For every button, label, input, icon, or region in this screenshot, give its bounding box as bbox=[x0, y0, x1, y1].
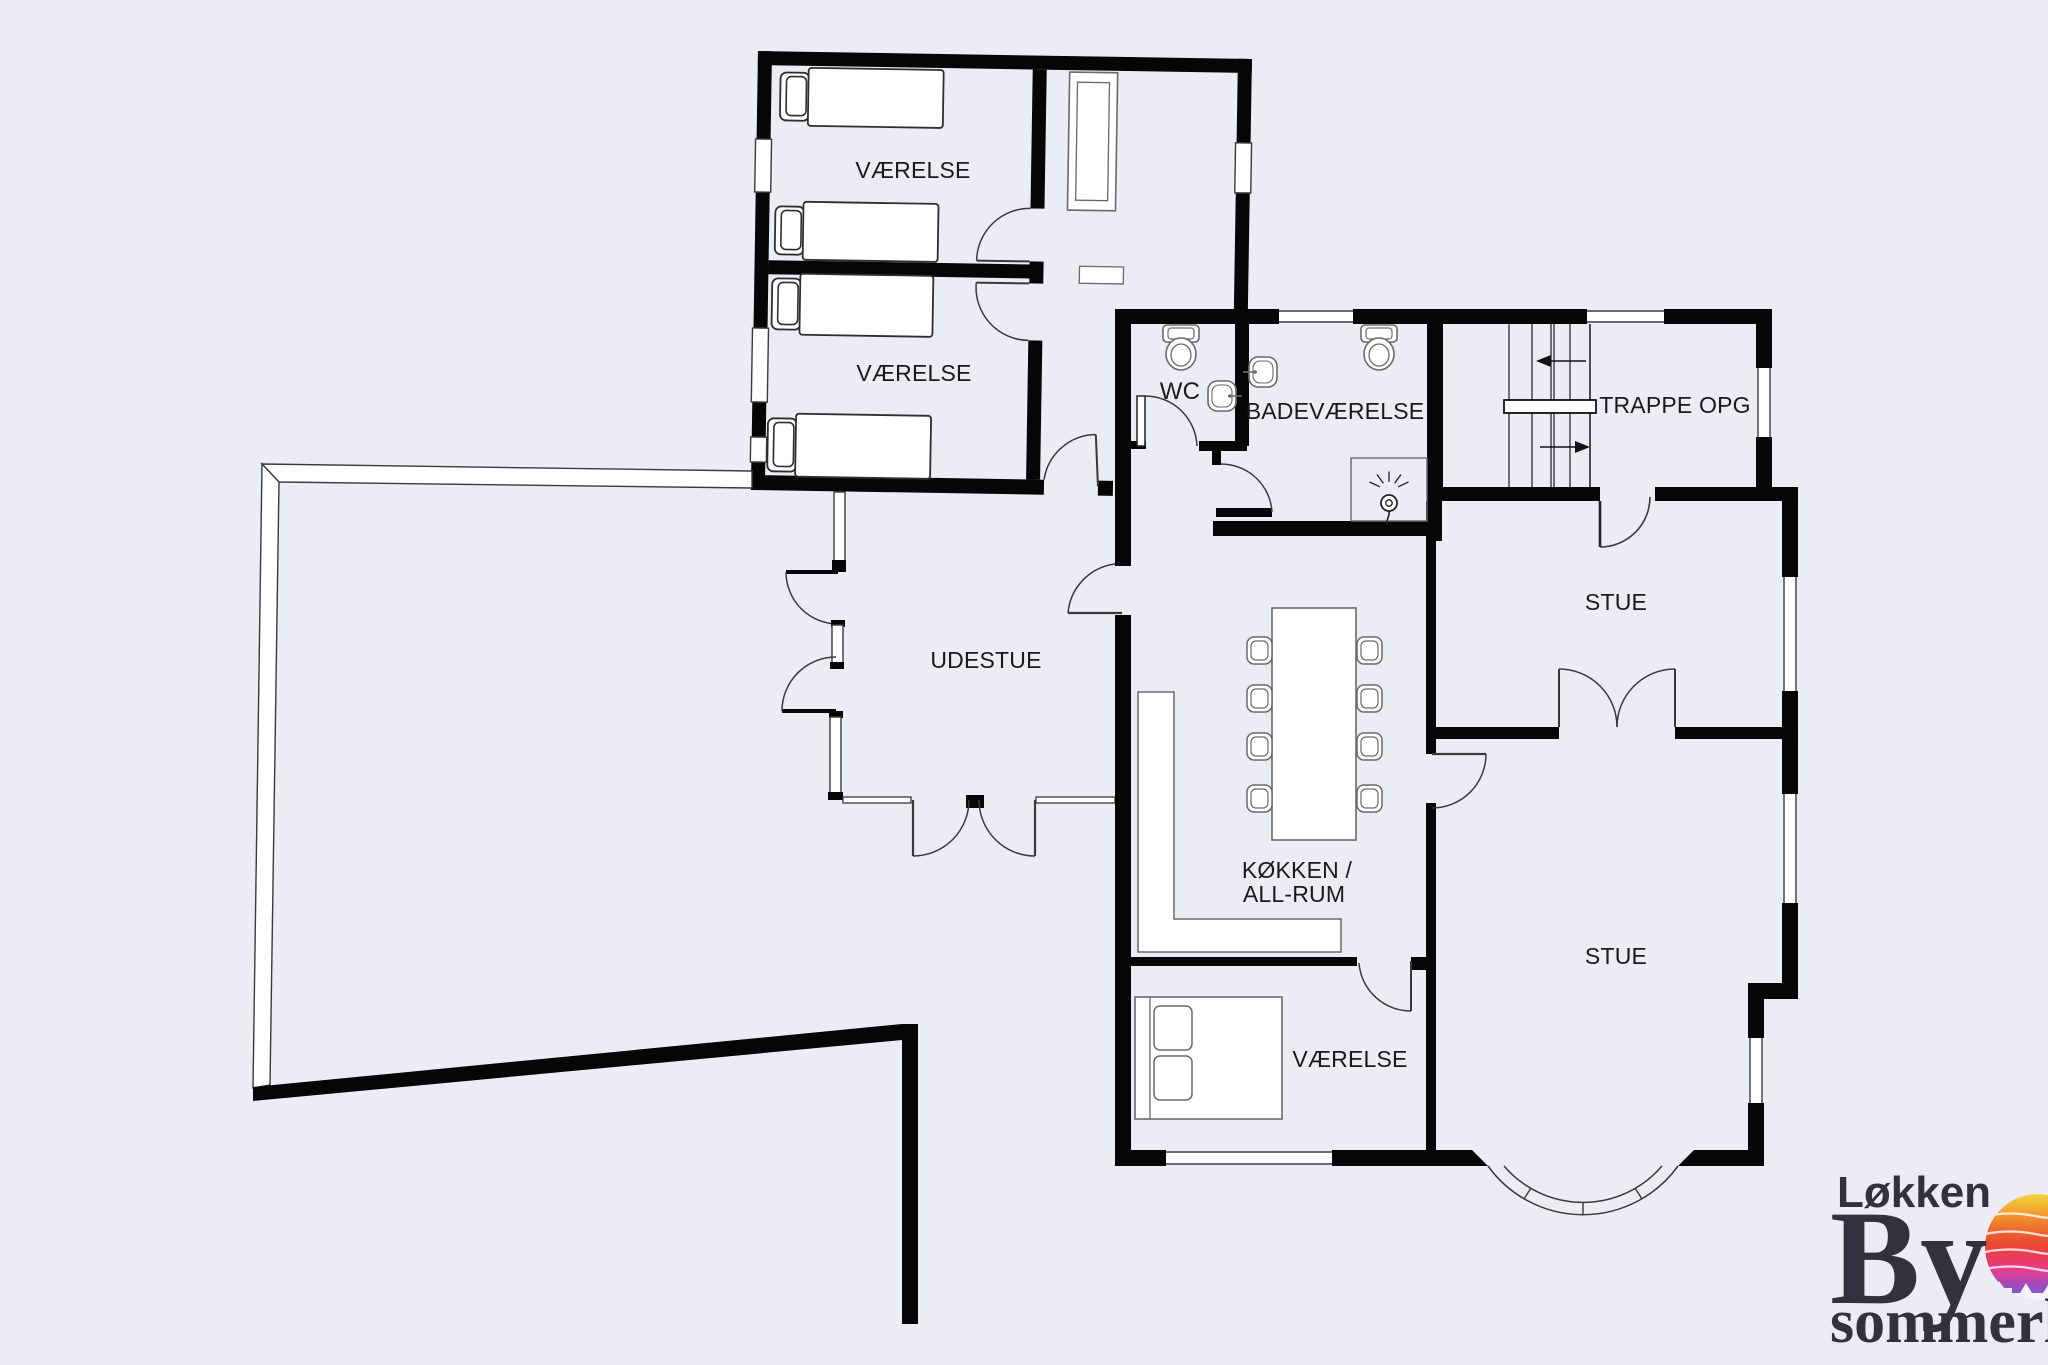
svg-text:VÆRELSE: VÆRELSE bbox=[855, 157, 970, 183]
svg-text:ALL-RUM: ALL-RUM bbox=[1243, 881, 1345, 907]
svg-text:UDESTUE: UDESTUE bbox=[930, 647, 1041, 673]
svg-text:TRAPPE OPG: TRAPPE OPG bbox=[1599, 392, 1751, 418]
svg-text:BADEVÆRELSE: BADEVÆRELSE bbox=[1246, 398, 1425, 424]
svg-text:STUE: STUE bbox=[1585, 589, 1647, 615]
svg-text:KØKKEN /: KØKKEN / bbox=[1242, 857, 1353, 883]
svg-text:sommerh: sommerh bbox=[1830, 1288, 2048, 1356]
svg-text:STUE: STUE bbox=[1585, 943, 1647, 969]
svg-text:VÆRELSE: VÆRELSE bbox=[856, 360, 971, 386]
svg-text:VÆRELSE: VÆRELSE bbox=[1292, 1046, 1407, 1072]
svg-text:WC: WC bbox=[1160, 378, 1200, 405]
